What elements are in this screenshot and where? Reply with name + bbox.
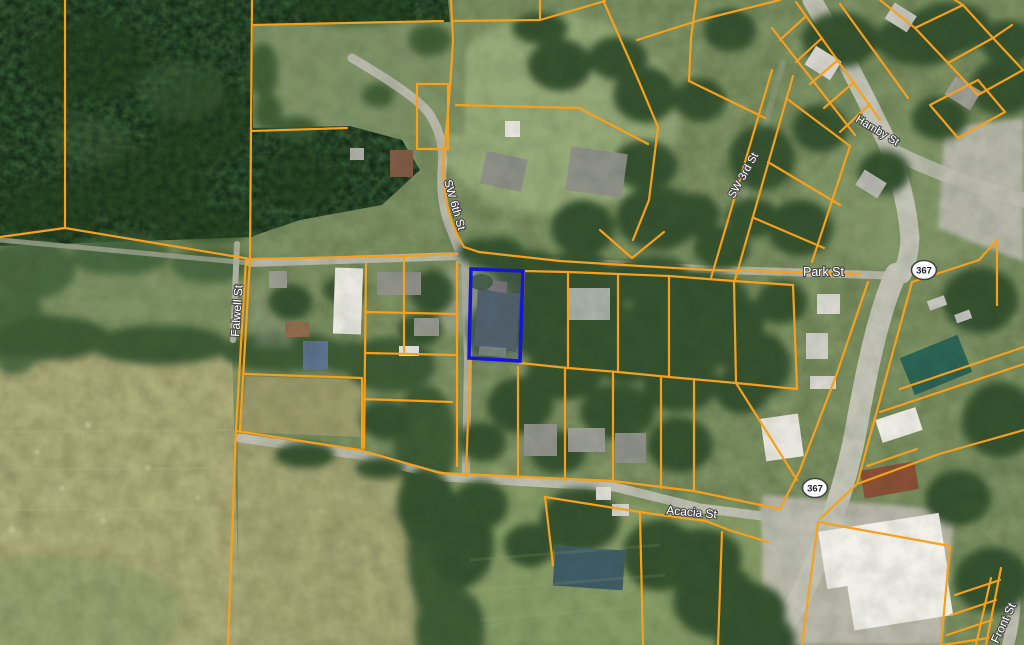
svg-text:367: 367 <box>807 484 823 495</box>
svg-text:367: 367 <box>916 266 932 277</box>
svg-text:Park St: Park St <box>803 265 845 279</box>
